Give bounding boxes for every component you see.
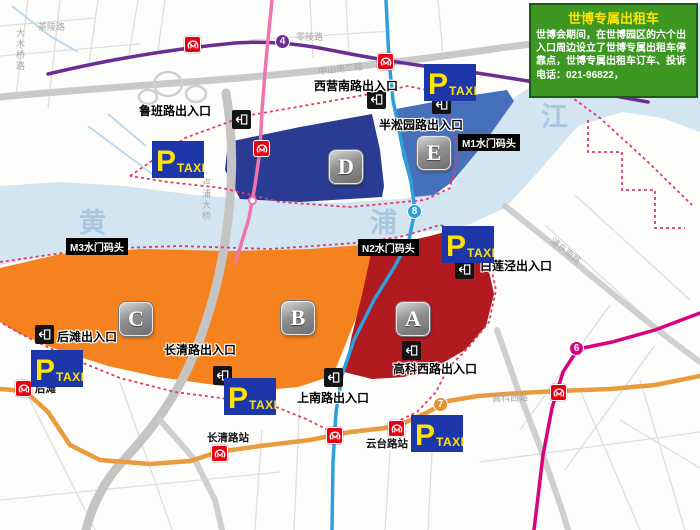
zone-badge-b: B xyxy=(281,301,315,335)
taxi-sign-p: P xyxy=(415,422,435,450)
entrance-label-xiying: 西营南路出入口 xyxy=(314,77,398,94)
entrance-label-gaokexi: 高科西路出入口 xyxy=(393,360,477,377)
station-label-changqing: 长清路站 xyxy=(207,430,249,445)
street-label-chaling: 茶陵路 xyxy=(38,20,65,33)
taxi-sign-p: P xyxy=(35,357,55,385)
zone-badge-a: A xyxy=(396,302,430,336)
street-label-lupu-bridge: 卢浦大桥 xyxy=(200,178,213,222)
metro-station-icon xyxy=(184,36,201,53)
metro-line-6-badge: 6 xyxy=(569,341,584,356)
street-label-gaokexi: 高科西路 xyxy=(492,390,528,404)
info-box-title: 世博专属出租车 xyxy=(536,8,691,27)
exit-icon-gaokexi xyxy=(402,341,421,360)
wharf-label-n2: N2水门码头 xyxy=(358,239,419,256)
metro-line-8-badge: 8 xyxy=(407,204,422,219)
entrance-label-changqing: 长清路出入口 xyxy=(164,341,236,358)
taxi-sign-p: P xyxy=(156,148,176,176)
expo-taxi-map: 世博专属出租车 世博会期间，在世博园区的六个出入口周边设立了世博专属出租车停靠点… xyxy=(0,0,700,530)
metro-station-icon-gaokexi xyxy=(550,384,567,401)
info-box-body: 世博会期间，在世博园区的六个出入口周边设立了世博专属出租车停靠点，世博专属出租车… xyxy=(536,29,691,82)
metro-line-7-badge: 7 xyxy=(433,397,448,412)
exit-icon-shangnan xyxy=(324,368,343,387)
river-label-pu: 浦 xyxy=(370,201,397,240)
taxi-stand-sign-yuntai: PTAXI xyxy=(411,415,463,452)
exit-icon-houtan xyxy=(35,325,54,344)
metro-line-13-station-dot xyxy=(248,196,257,205)
station-label-yuntai: 云台路站 xyxy=(366,436,408,451)
taxi-stand-sign-shangnan: PTAXI xyxy=(224,378,276,415)
river-label-jiang: 江 xyxy=(541,95,568,134)
street-label-damuqiao: 大木桥路 xyxy=(14,28,27,72)
zone-badge-c: C xyxy=(119,302,153,336)
taxi-stand-sign-bailianjing: PTAXI xyxy=(442,226,494,263)
zone-badge-d: D xyxy=(329,150,363,184)
metro-station-icon xyxy=(377,53,394,70)
metro-station-icon-yuntai xyxy=(388,420,405,437)
taxi-stand-sign-luban: PTAXI xyxy=(152,141,204,178)
metro-station-icon-changqing xyxy=(211,445,228,462)
taxi-stand-sign-houtan: PTAXI xyxy=(31,350,83,387)
wharf-label-m1: M1水门码头 xyxy=(458,134,520,151)
taxi-sign-p: P xyxy=(446,233,466,261)
entrance-label-shangnan: 上南路出入口 xyxy=(297,389,369,406)
entrance-label-luban: 鲁班路出入口 xyxy=(139,102,211,119)
taxi-sign-label: TAXI xyxy=(249,398,277,412)
metro-station-icon xyxy=(326,427,343,444)
expo-taxi-info-box: 世博专属出租车 世博会期间，在世博园区的六个出入口周边设立了世博专属出租车停靠点… xyxy=(529,3,698,98)
taxi-sign-label: TAXI xyxy=(436,435,464,449)
entrance-label-houtan: 后滩出入口 xyxy=(57,328,117,345)
taxi-sign-label: TAXI xyxy=(449,84,477,98)
taxi-sign-label: TAXI xyxy=(467,246,495,260)
taxi-stand-sign-bansongyuan: PTAXI xyxy=(424,64,476,101)
metro-station-icon-houtan xyxy=(15,380,32,397)
metro-line-4-badge: 4 xyxy=(275,34,290,49)
metro-station-icon xyxy=(253,140,270,157)
zone-badge-e: E xyxy=(417,136,451,170)
taxi-sign-p: P xyxy=(428,71,448,99)
taxi-sign-label: TAXI xyxy=(56,370,84,384)
entrance-label-bansongyuan: 半淞园路出入口 xyxy=(379,116,463,133)
wharf-label-m3: M3水门码头 xyxy=(66,238,128,255)
taxi-sign-label: TAXI xyxy=(177,161,205,175)
exit-icon-luban xyxy=(232,110,251,129)
taxi-sign-p: P xyxy=(228,385,248,413)
street-label-lingling: 零陵路 xyxy=(296,30,323,43)
river-label-huang: 黄 xyxy=(79,201,106,240)
